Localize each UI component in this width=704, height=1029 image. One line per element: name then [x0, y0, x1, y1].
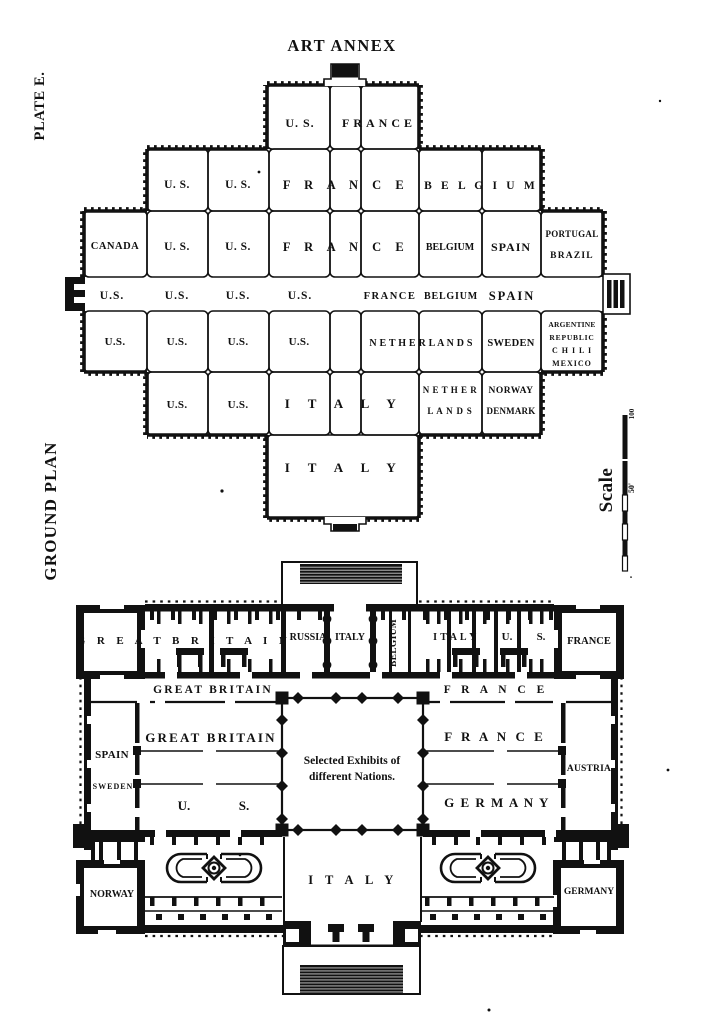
svg-text:C H I L I: C H I L I	[552, 346, 592, 355]
svg-text:ART ANNEX: ART ANNEX	[287, 36, 396, 55]
svg-text:F R A N C E: F R A N C E	[283, 178, 409, 192]
svg-text:MEXICO: MEXICO	[552, 359, 592, 368]
svg-text:RUSSIA: RUSSIA	[290, 632, 327, 643]
svg-text:different Nations.: different Nations.	[309, 771, 395, 783]
svg-text:BELGIUM: BELGIUM	[424, 291, 478, 302]
svg-text:GREAT BRITAIN: GREAT BRITAIN	[145, 730, 277, 745]
svg-text:GROUND PLAN: GROUND PLAN	[41, 441, 60, 580]
svg-text:N E T H E R: N E T H E R	[423, 385, 477, 395]
svg-text:N E T H E R L A N D S: N E T H E R L A N D S	[369, 338, 473, 349]
svg-text:I T A L Y: I T A L Y	[308, 873, 398, 887]
svg-text:L A N D S: L A N D S	[427, 406, 472, 416]
svg-text:REPUBLIC: REPUBLIC	[549, 333, 594, 342]
svg-text:U.S.: U.S.	[105, 336, 126, 348]
svg-text:U. S.: U. S.	[225, 179, 251, 191]
svg-text:U.S.: U.S.	[226, 290, 250, 302]
svg-text:BELGIUM: BELGIUM	[426, 242, 475, 253]
svg-text:BELGIUM: BELGIUM	[389, 619, 399, 667]
svg-text:50': 50'	[627, 483, 636, 493]
svg-text:NORWAY: NORWAY	[90, 889, 135, 900]
svg-text:U. S.: U. S.	[225, 241, 251, 253]
svg-text:S.: S.	[537, 631, 546, 643]
svg-text:U.S.: U.S.	[167, 399, 188, 411]
svg-text:U.: U.	[178, 798, 191, 813]
svg-text:SPAIN: SPAIN	[491, 240, 531, 254]
svg-text:I T A L Y: I T A L Y	[285, 460, 404, 475]
svg-text:SWEDEN: SWEDEN	[93, 782, 134, 791]
svg-text:U.S.: U.S.	[288, 290, 312, 302]
svg-text:U.S.: U.S.	[289, 336, 310, 348]
svg-text:U. S.: U. S.	[285, 116, 314, 130]
svg-text:PLATE E.: PLATE E.	[32, 72, 48, 141]
svg-text:U.S.: U.S.	[100, 290, 124, 302]
svg-text:SPAIN: SPAIN	[95, 749, 129, 761]
svg-text:ARGENTINE: ARGENTINE	[548, 320, 595, 329]
svg-text:SPAIN: SPAIN	[489, 289, 536, 303]
svg-text:DENMARK: DENMARK	[487, 406, 536, 416]
svg-text:SWEDEN: SWEDEN	[487, 338, 534, 349]
svg-text:PORTUGAL: PORTUGAL	[545, 229, 598, 239]
svg-text:I T A L Y: I T A L Y	[433, 632, 477, 643]
svg-text:F R A N C E: F R A N C E	[444, 684, 549, 696]
svg-text:U. S.: U. S.	[164, 241, 190, 253]
svg-text:F R A N C E: F R A N C E	[283, 240, 409, 254]
svg-text:S.: S.	[239, 798, 249, 813]
svg-text:BRAZIL: BRAZIL	[550, 251, 594, 261]
svg-text:B E L G I U M: B E L G I U M	[424, 180, 538, 192]
svg-text:NORWAY: NORWAY	[488, 386, 533, 396]
svg-text:Scale: Scale	[596, 468, 617, 513]
svg-text:GERMANY: GERMANY	[564, 887, 614, 897]
svg-text:ITALY: ITALY	[335, 632, 366, 643]
svg-text:CANADA: CANADA	[91, 241, 140, 252]
svg-text:U.S.: U.S.	[165, 290, 189, 302]
svg-text:AUSTRIA: AUSTRIA	[567, 764, 611, 774]
svg-text:FRANCE: FRANCE	[342, 116, 416, 130]
svg-text:Selected Exhibits of: Selected Exhibits of	[304, 755, 401, 767]
svg-text:100: 100	[628, 408, 636, 419]
svg-text:F R A N C E: F R A N C E	[444, 729, 546, 744]
svg-text:U.S.: U.S.	[167, 336, 188, 348]
svg-text:G R E A T B R I T A I N: G R E A T B R I T A I N	[77, 635, 291, 647]
svg-text:U.S.: U.S.	[228, 336, 249, 348]
svg-text:U.S.: U.S.	[228, 399, 249, 411]
svg-text:I T A L Y: I T A L Y	[285, 396, 404, 411]
svg-text:FRANCE: FRANCE	[567, 636, 611, 647]
svg-text:G E R M A N Y: G E R M A N Y	[444, 795, 550, 810]
svg-text:GREAT BRITAIN: GREAT BRITAIN	[153, 684, 273, 696]
svg-text:U.: U.	[502, 631, 513, 643]
svg-text:U. S.: U. S.	[164, 179, 190, 191]
svg-text:FRANCE: FRANCE	[364, 291, 417, 302]
